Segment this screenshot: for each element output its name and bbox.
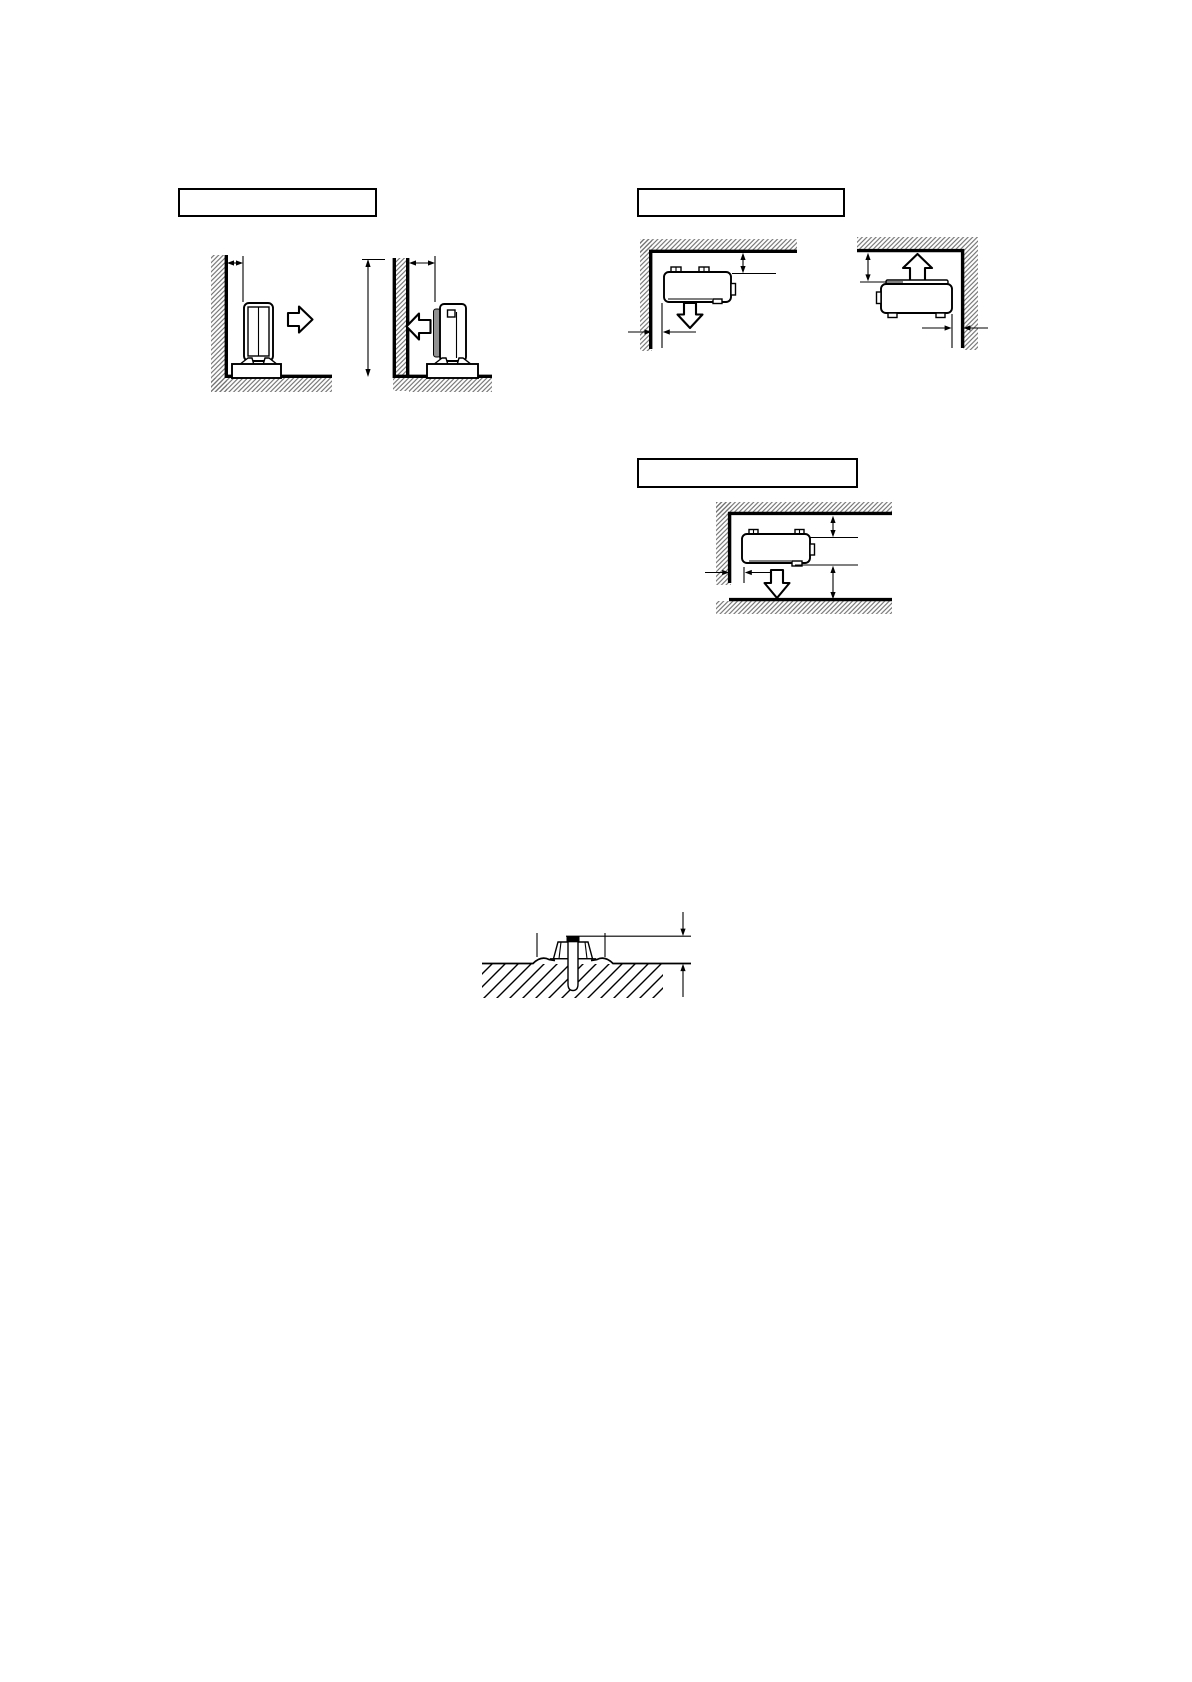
nameplate xyxy=(448,310,456,317)
outdoor-unit-back-view xyxy=(427,304,478,378)
page-artwork xyxy=(0,0,1192,1682)
outdoor-unit-front-view xyxy=(232,303,281,378)
figure-floor-standing-back-toward-wall xyxy=(362,256,492,392)
floor-hatch xyxy=(716,601,892,614)
ceiling-clearance-dimension xyxy=(732,253,776,274)
wall-clearance-dimension xyxy=(705,567,771,583)
figure-floor-standing-front-toward-wall xyxy=(211,255,332,392)
suspended-unit-side-view xyxy=(664,267,736,304)
floor-hatch xyxy=(211,378,332,392)
ceiling-clearance-dimension xyxy=(860,253,903,282)
wall-height-dimension xyxy=(362,259,385,377)
wall-clearance-dimension xyxy=(409,256,435,302)
bolt-top-cap xyxy=(567,937,580,943)
wall-clearance-dimension xyxy=(922,314,988,348)
figure-enclosed-unit-downward-blow xyxy=(705,502,892,614)
floor-hatch xyxy=(409,378,492,392)
anchor-bolt-shank xyxy=(568,939,578,991)
side-connection-tab xyxy=(731,284,736,296)
airflow-down-icon xyxy=(765,570,790,598)
airflow-up-icon xyxy=(903,254,932,281)
figure-ceiling-corner-downward-blow xyxy=(628,239,797,351)
suspended-unit-side-view xyxy=(742,530,815,567)
floor-clearance-dimension xyxy=(795,565,858,599)
figure-ceiling-unit-upward-blow xyxy=(857,237,988,350)
figure-anchor-bolt-detail xyxy=(482,912,691,998)
side-connection-tab xyxy=(810,544,815,555)
wall-clearance-dimension xyxy=(227,256,243,302)
suspended-unit-side-view xyxy=(877,280,953,318)
mounting-base xyxy=(427,364,478,378)
side-connection-tab xyxy=(877,292,882,304)
scanned-manual-page: { "page": { "background_color": "#ffffff… xyxy=(0,0,1192,1682)
airflow-down-icon xyxy=(678,303,703,328)
ceiling-clearance-dimension xyxy=(810,516,858,538)
mounting-base xyxy=(232,364,281,378)
wall-hatch xyxy=(963,252,978,350)
airflow-left-icon xyxy=(407,314,431,340)
airflow-right-icon xyxy=(288,307,313,333)
wall-floor-corner-line xyxy=(226,255,332,376)
